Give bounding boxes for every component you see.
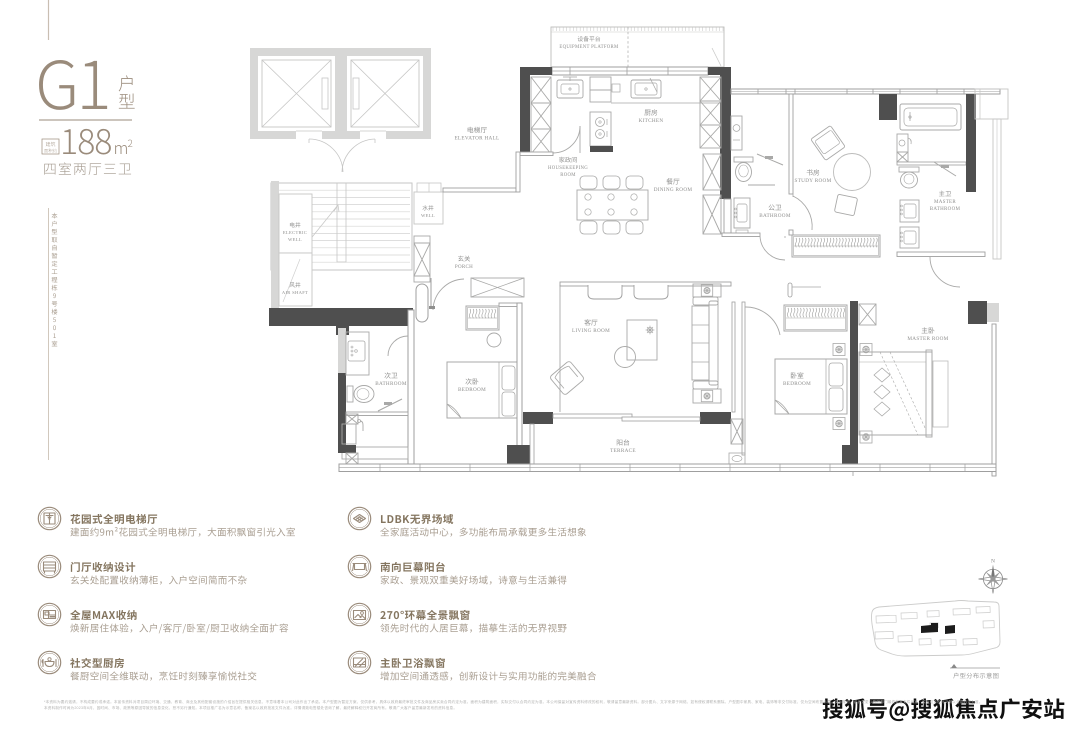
svg-text:N: N bbox=[991, 559, 995, 565]
